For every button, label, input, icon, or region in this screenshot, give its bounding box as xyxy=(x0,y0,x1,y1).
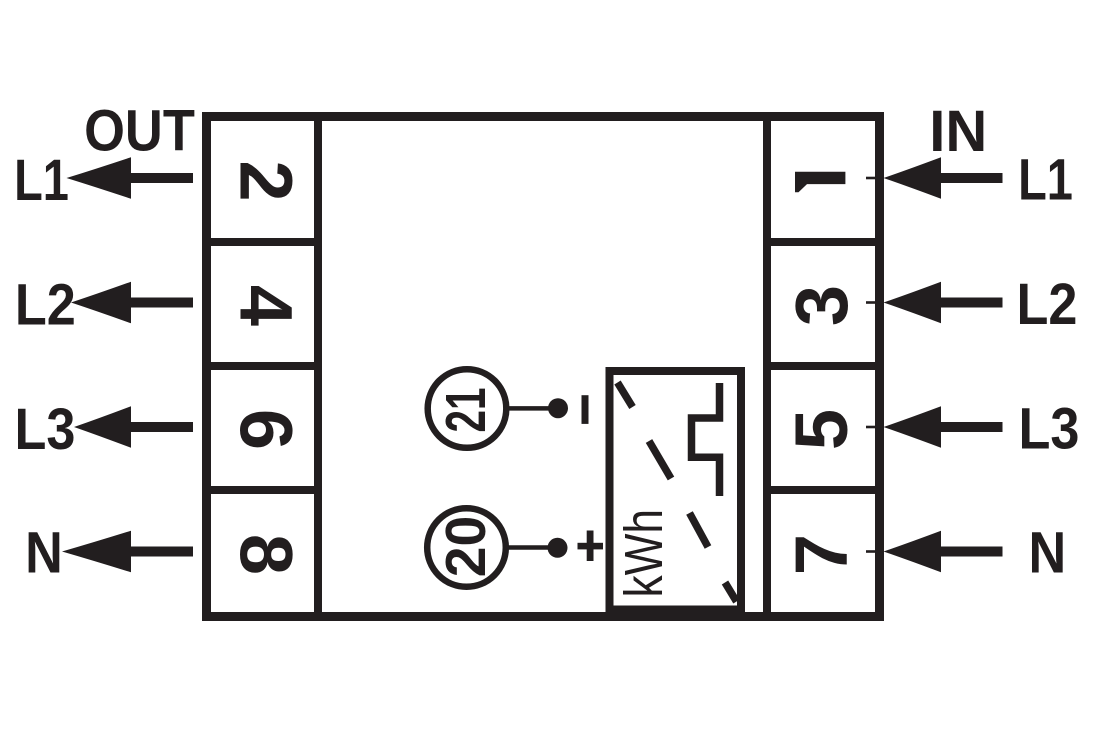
svg-text:L3: L3 xyxy=(15,396,76,461)
svg-text:21: 21 xyxy=(434,387,497,432)
svg-text:8: 8 xyxy=(225,534,308,575)
svg-text:N: N xyxy=(1029,520,1067,585)
svg-text:5: 5 xyxy=(780,409,863,450)
svg-text:2: 2 xyxy=(225,160,308,201)
svg-text:L2: L2 xyxy=(1017,271,1078,336)
svg-text:3: 3 xyxy=(780,285,863,326)
svg-text:20: 20 xyxy=(433,516,497,577)
svg-text:L3: L3 xyxy=(1019,396,1080,461)
svg-text:L1: L1 xyxy=(14,148,69,213)
svg-text:4: 4 xyxy=(225,285,308,326)
svg-text:L1: L1 xyxy=(1018,148,1073,213)
svg-text:OUT: OUT xyxy=(84,98,195,163)
svg-text:N: N xyxy=(25,520,63,585)
svg-text:IN: IN xyxy=(929,99,987,164)
svg-text:6: 6 xyxy=(225,409,308,450)
svg-text:kWh: kWh xyxy=(614,509,674,598)
svg-text:7: 7 xyxy=(780,534,863,575)
svg-text:L2: L2 xyxy=(15,272,76,337)
